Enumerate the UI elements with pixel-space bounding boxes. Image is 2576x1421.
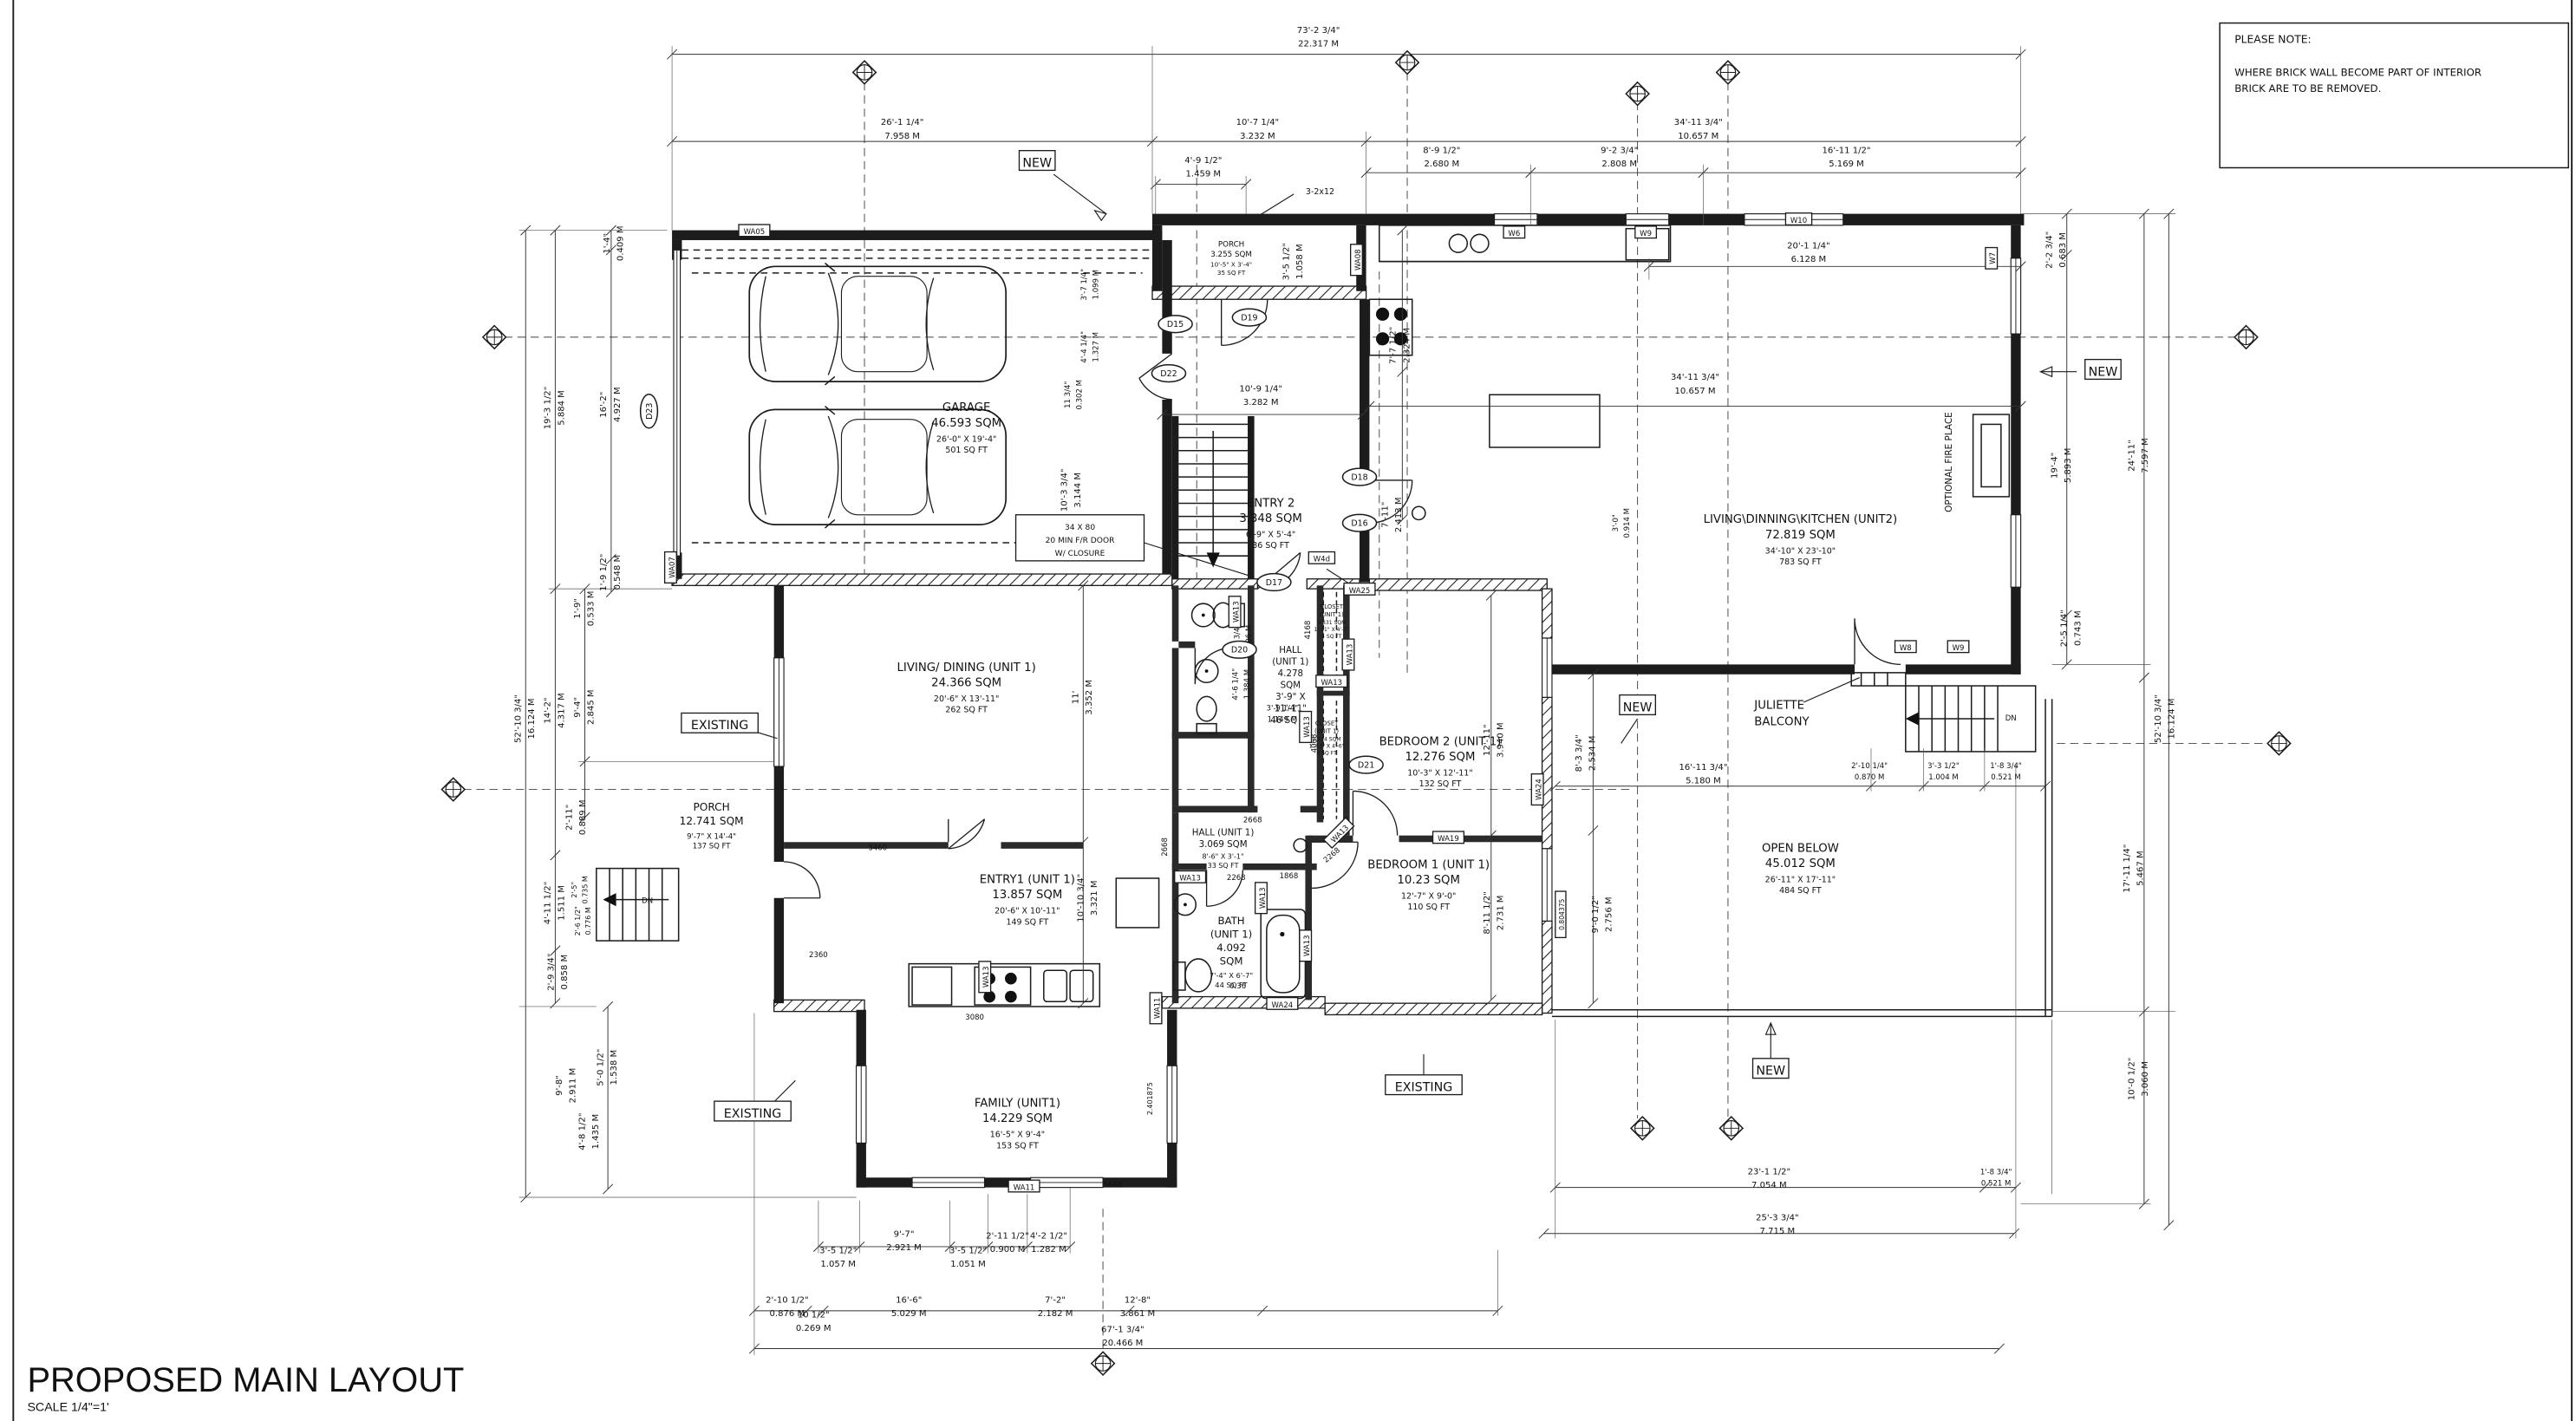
dimension-label: 52'-10 3/4" (514, 694, 524, 743)
dimension-label: 11' (1072, 691, 1081, 705)
wall-tag: 0.804375 (1555, 891, 1566, 937)
tag-text: WA07 (668, 557, 677, 578)
room-label: 4.278 (1278, 668, 1303, 679)
tag-text: D16 (1351, 519, 1367, 529)
interior-partitions (784, 585, 1542, 1003)
tag-text: W6 (1508, 230, 1520, 238)
wall-tag: WA05 (739, 225, 770, 237)
sheet-title: PROPOSED MAIN LAYOUT (27, 1361, 464, 1399)
dimension-label: 19'-4" (2050, 453, 2059, 479)
door-tag: D21 (1349, 756, 1383, 773)
dimension-label: 4'-8 1/2" (578, 1113, 588, 1150)
dimension-label: 16'-2" (599, 392, 609, 418)
dimension-label: 0.870 M (1855, 773, 1884, 782)
room-label: LIVING/ DINING (UNIT 1) (897, 662, 1036, 675)
note-heading: PLEASE NOTE: (2234, 33, 2311, 45)
wall-tag: WA25 (1344, 583, 1375, 596)
dimension-label: 10'-0 1/2" (2128, 1058, 2137, 1101)
wall-tag: W6 (1503, 226, 1525, 238)
dimension-label: 19'-3 1/2" (544, 387, 553, 430)
wall-tag: WA24 (1267, 998, 1298, 1010)
door-tag: D22 (1151, 365, 1185, 382)
note-block: PLEASE NOTE: WHERE BRICK WALL BECOME PAR… (2234, 33, 2481, 95)
grid-marker-icon (2234, 326, 2258, 349)
dimension-label: 0.533 M (586, 591, 596, 627)
dimension-label: 3'-5 1/2" (1281, 243, 1291, 280)
room-label: 12.741 SQM (680, 815, 744, 827)
tag-text: NEW (1623, 701, 1653, 714)
floor-plan-canvas: GARAGE46.593 SQM26'-0" X 19'-4"501 SQ FT… (0, 0, 2576, 1421)
dimension-label: 12'-11" (1483, 724, 1492, 756)
dimension-label: 2.731 M (1496, 896, 1505, 931)
dimension-label: 7'-11" (1380, 502, 1390, 528)
room-label: PORCH (1218, 241, 1244, 250)
dimension-label: 0.269 M (796, 1324, 831, 1333)
room-label: 36 SQ FT (1252, 541, 1289, 551)
dimension-label: 9'-7" (894, 1230, 915, 1240)
dimension-label: 9'-8" (555, 1075, 564, 1096)
dimension-label: 2.911 M (569, 1068, 578, 1104)
dimension-label: 3'-0" (1612, 514, 1621, 531)
room-label: CLOSET (1315, 720, 1339, 727)
wall-tag: WA08 (1351, 244, 1363, 276)
tag-text: W4d (1314, 556, 1330, 564)
annotation-text: BALCONY (1754, 716, 1810, 729)
room-label: 35 SQ FT (1217, 269, 1246, 277)
grid-marker-icon (1717, 61, 1740, 84)
tag-text: WA24 (1536, 779, 1544, 800)
dimension-label: 4.927 M (613, 387, 623, 422)
dimension-label: 1'-8 3/4" (1990, 762, 2022, 771)
tag-text: W8 (1900, 644, 1912, 653)
dimension-label: 2.182 M (1038, 1309, 1073, 1319)
dimension-label: 3.232 M (1240, 132, 1275, 141)
room-label: 26'-11" X 17'-11" (1765, 876, 1836, 885)
room-label: 3'-9" X (1275, 692, 1306, 702)
room-label: 4.092 (1216, 942, 1246, 954)
dimension-label: 11 3/4" (1064, 381, 1073, 408)
annotation-text: DN (642, 896, 653, 905)
annotation-text: 2268 (1227, 874, 1246, 883)
annotation-text: 4168 (1304, 621, 1313, 640)
wall-tag: W7 (1986, 248, 1998, 270)
dimension-label: 0.889 M (578, 799, 588, 835)
room-label: SQM (1281, 681, 1301, 691)
room-label: HALL (UNIT 1) (1192, 828, 1255, 838)
dimension-label: 3'-5 1/2" (819, 1247, 857, 1256)
tag-text: D21 (1358, 761, 1374, 771)
annotation-text: DN (2005, 714, 2017, 723)
kitchen-unit2 (1369, 225, 1670, 447)
dimension-label: 1.435 M (591, 1114, 601, 1150)
dimension-label: 67'-1 3/4" (1101, 1326, 1145, 1335)
grid-marker-icon (2267, 732, 2291, 755)
dimension-label: 0.858 M (560, 955, 570, 990)
room-label: 24.366 SQM (931, 677, 1001, 690)
dimension-label: 10 1/2" (798, 1310, 830, 1320)
room-label: 7'-4" X 6'-7" (1210, 971, 1254, 980)
tag-text: D15 (1167, 320, 1184, 329)
tag-text: W9 (1953, 644, 1965, 653)
dimension-label: 7'-2" (1045, 1295, 1066, 1305)
note-text: 34 X 80 (1065, 524, 1095, 532)
wall-tag: WA13 (1324, 818, 1354, 848)
dimension-label: 3.861 M (1120, 1309, 1156, 1319)
room-label: 20'-6" X 13'-11" (934, 694, 999, 704)
room-label: 3.255 SQM (1210, 251, 1252, 259)
room-label: 132 SQ FT (1419, 779, 1462, 789)
dimension-label: 5.169 M (1829, 160, 1864, 169)
dimension-label: 4'-6 1/4" (1232, 668, 1241, 701)
room-label: 3.348 SQM (1239, 512, 1302, 525)
dimension-label: 2.324 M (1402, 328, 1412, 363)
dimension-label: 5'-0 1/2" (596, 1049, 605, 1086)
status-tag: EXISTING (1386, 1075, 1462, 1095)
room-label: ENTRY1 (UNIT 1) (980, 874, 1075, 887)
dimension-label: 52'-10 3/4" (2154, 694, 2163, 743)
tag-text: D23 (645, 403, 655, 420)
dimension-label: 1.384 M (1243, 669, 1252, 699)
room-label: ENTRY 2 (1247, 497, 1295, 510)
dimension-label: 1.057 M (820, 1260, 856, 1269)
room-label: 262 SQ FT (945, 706, 988, 715)
dimension-label: 1'-9 1/2" (599, 554, 609, 591)
tag-text: D17 (1266, 578, 1282, 588)
room-label: 72.819 SQM (1765, 529, 1836, 542)
dimension-label: 12'-8" (1125, 1295, 1151, 1305)
dimension-label: 34'-11 3/4" (1671, 373, 1719, 382)
dimension-label: 2'-11 1/2" (986, 1231, 1029, 1241)
dimension-label: 10'-10 3/4" (1076, 874, 1086, 922)
tag-text: WA13 (982, 967, 991, 988)
dimension-label: 20.466 M (1102, 1339, 1143, 1348)
tag-text: WA11 (1153, 998, 1162, 1020)
dimension-label: 26'-1 1/4" (881, 118, 924, 127)
dimension-label: 10.657 M (1674, 387, 1715, 396)
dimension-label: 2.808 M (1601, 160, 1637, 169)
room-label: 110 SQ FT (1407, 903, 1450, 912)
annotation-text: 3-2x12 (1306, 187, 1334, 197)
dimension-label: 2'-10 1/4" (1851, 762, 1888, 771)
fire-door-note: 34 X 8020 MIN F/R DOORW/ CLOSURE (1016, 515, 1145, 561)
wall-tag: WA13 (1175, 871, 1206, 883)
fireplace (1973, 414, 2010, 497)
dimension-label: 4'-11 1/2" (544, 882, 553, 925)
dimension-label: 14'-2" (544, 697, 553, 723)
tag-text: WA13 (1232, 601, 1241, 623)
dimension-label: 3'-3 1/2" (1927, 762, 1960, 771)
room-label: 10.23 SQM (1397, 874, 1460, 887)
dimension-label: 9'-0 1/2" (1591, 896, 1601, 933)
annotation-text: 4068 (1311, 734, 1320, 753)
room-label: 10'-5" X 3'-4" (1210, 261, 1252, 269)
drawing-sheet: GARAGE46.593 SQM26'-0" X 19'-4"501 SQ FT… (0, 0, 2576, 1421)
room-label: 16'-5" X 9'-4" (990, 1131, 1045, 1140)
room-label: 13.857 SQM (992, 889, 1062, 902)
wall-tag: W8 (1895, 641, 1917, 653)
wall-tag: W9 (1947, 641, 1969, 653)
note-text: 20 MIN F/R DOOR (1046, 537, 1116, 545)
room-label: (UNIT 1) (1210, 929, 1252, 941)
annotation-text: 2360 (809, 951, 828, 960)
note-line2: BRICK ARE TO BE REMOVED. (2234, 82, 2381, 95)
dimension-label: 4'-4 1/4" (1080, 331, 1089, 363)
dimension-label: 16'-6" (896, 1295, 922, 1305)
tag-text: W7 (1989, 252, 1998, 264)
grid-marker-icon (441, 778, 465, 801)
note-text: W/ CLOSURE (1055, 550, 1105, 558)
status-tag: NEW (1753, 1059, 1789, 1079)
tag-text: WA13 (1321, 679, 1342, 688)
room-label: 20'-6" X 10'-11" (995, 907, 1060, 916)
dimension-label: 1.058 M (1295, 244, 1305, 279)
dimension-label: 2.534 M (1588, 736, 1598, 772)
status-tag: EXISTING (681, 713, 758, 733)
stairs-juliette (1851, 673, 2035, 752)
tag-text: W9 (1640, 230, 1652, 238)
grid-marker-icon (853, 61, 877, 84)
wall-tag: WA24 (1531, 774, 1543, 805)
dimension-label: 0.521 M (1981, 1180, 2011, 1189)
stairs-porch (597, 869, 679, 941)
dimension-label: 3.940 M (1496, 722, 1505, 758)
room-label: BATH (1217, 915, 1244, 927)
dimension-label: 10'-9 1/4" (1239, 384, 1282, 394)
annotation-text: 1868 (1280, 872, 1299, 881)
tag-text: D22 (1160, 369, 1177, 379)
dimension-label: 34'-11 3/4" (1674, 118, 1723, 127)
dimension-label: 22.317 M (1298, 40, 1339, 49)
dimension-label: 1.459 M (1185, 169, 1221, 179)
wall-tag: WA13 (1342, 639, 1354, 670)
room-label: 9'-7" X 14'-4" (687, 832, 736, 841)
status-tag: EXISTING (714, 1101, 791, 1121)
tag-text: EXISTING (1395, 1080, 1452, 1094)
dimension-label: 16'-11 1/2" (1823, 146, 1871, 155)
door-tag: D18 (1342, 468, 1376, 486)
room-label: 12.276 SQM (1405, 751, 1475, 764)
door-tag: D20 (1223, 641, 1256, 658)
bath-fixtures-mid (1195, 660, 1218, 733)
room-label: 137 SQ FT (693, 843, 732, 851)
annotation-text: 5668 (1104, 1182, 1123, 1190)
dimension-label: 8'-11 1/2" (1483, 891, 1492, 935)
dimension-label: 1.051 M (950, 1260, 986, 1269)
dimension-label: 3.321 M (1090, 880, 1099, 916)
dimension-label: 8'-9 1/2" (1423, 146, 1460, 155)
dimension-label: 4'-9 1/2" (1184, 156, 1222, 166)
dimension-label: 7.597 M (2141, 438, 2150, 473)
wall-tag: WA13 (979, 961, 991, 993)
room-label: 153 SQ FT (996, 1141, 1039, 1150)
dimension-label: 2.413 M (1394, 497, 1404, 532)
room-label: GARAGE (942, 401, 991, 414)
grid-marker-icon (1092, 1352, 1115, 1375)
room-label: (UNIT 1) (1320, 611, 1344, 618)
dimension-label: 5.029 M (891, 1309, 927, 1319)
room-label: 46.593 SQM (931, 417, 1001, 430)
dimension-label: 0.900 M (990, 1245, 1026, 1255)
tag-text: D18 (1351, 473, 1367, 483)
room-label: 26'-0" X 19'-4" (936, 434, 996, 444)
dimension-label: 23'-1 1/2" (1748, 1167, 1791, 1177)
dimension-label: 1'-8 3/4" (1980, 1168, 2012, 1177)
wall-tag: WA13 (1229, 596, 1241, 628)
room-label: 12'-7" X 9'-0" (1401, 892, 1456, 902)
tag-text: WA24 (1272, 1001, 1294, 1010)
dimension-label: 2.921 M (886, 1243, 922, 1253)
room-label: CLOSET (1321, 603, 1344, 610)
tag-text: W10 (1790, 217, 1807, 225)
dimension-label: 8'-3 3/4" (1575, 734, 1584, 772)
dimension-label: 0.548 M (613, 555, 623, 590)
tag-text: NEW (1756, 1064, 1785, 1078)
dimension-label: 1.511 M (557, 885, 566, 921)
grid-marker-icon (1719, 1117, 1743, 1140)
dimension-label: 0.776 M (584, 907, 592, 935)
status-tag: NEW (2085, 360, 2121, 380)
dimension-label: 7.054 M (1751, 1181, 1787, 1190)
room-label: 1'-11" X 4'-7" (1314, 627, 1349, 633)
sheet-scale: SCALE 1/4"=1' (27, 1401, 108, 1415)
tag-text: WA11 (1014, 1183, 1035, 1192)
status-tag: NEW (1019, 151, 1054, 171)
dimension-label: 9'-4" (573, 697, 583, 718)
room-label: 45.012 SQM (1765, 857, 1836, 870)
dimension-label: 24'-11" (2128, 440, 2137, 472)
room-label: 3.069 SQM (1199, 839, 1248, 850)
dimension-label: 1.538 M (610, 1050, 619, 1085)
tag-text: WA13 (1179, 875, 1201, 883)
room-label: 33 SQ FT (1208, 862, 1239, 870)
room-label: HALL (1279, 645, 1301, 655)
dimension-label: 2'-5 1/4" (2060, 609, 2070, 647)
wall-tag: WA19 (1433, 831, 1464, 844)
dimension-label: 10'-7 1/4" (1236, 118, 1280, 127)
dimension-label: 2'-9 3/4" (546, 954, 556, 991)
tag-text: WA13 (1303, 935, 1312, 956)
wall-tag: WA13 (1255, 883, 1268, 914)
dimension-label: 5.180 M (1686, 776, 1721, 785)
room-label: 14.229 SQM (982, 1112, 1053, 1125)
door-tag: D17 (1257, 574, 1291, 591)
dimension-label: 0.683 M (2058, 232, 2068, 268)
dimension-label: 3.060 M (2141, 1061, 2150, 1097)
annotation-text: 2668 (1243, 816, 1262, 825)
dimension-label: 3'-9 1/4" (1267, 705, 1299, 714)
wall-tag: WA13 (1316, 675, 1347, 688)
dimension-label: 16.124 M (527, 698, 537, 739)
grid-marker-icon (1626, 82, 1649, 106)
dimension-label: 1.282 M (1031, 1245, 1066, 1255)
annotation-text: 2268 (1322, 846, 1342, 865)
annotation-text: 2.401875 (1146, 1082, 1154, 1115)
wall-tag: WA13 (1300, 930, 1312, 961)
annotation-text: 0.36 (1229, 982, 1246, 991)
tag-text: D20 (1231, 646, 1248, 655)
title-block: PROPOSED MAIN LAYOUT SCALE 1/4"=1' (27, 1361, 464, 1415)
room-label: 501 SQ FT (945, 446, 988, 455)
dimension-label: 1.004 M (1928, 773, 1958, 782)
tag-text: WA25 (1349, 587, 1371, 596)
dimension-label: 73'-2 3/4" (1297, 26, 1340, 36)
note-line1: WHERE BRICK WALL BECOME PART OF INTERIOR (2234, 66, 2481, 78)
dimension-label: 7'-7 1/2" (1389, 327, 1399, 364)
grid-marker-icon (1631, 1117, 1654, 1140)
dimension-label: 2'-5" (571, 882, 578, 898)
room-label: 149 SQ FT (1007, 917, 1049, 927)
dimension-label: 9'-2 3/4" (1601, 146, 1638, 155)
dimension-label: 6.128 M (1791, 255, 1827, 264)
room-label: 10'-3" X 12'-11" (1407, 768, 1472, 778)
dimension-label: 4'-2 1/2" (1030, 1231, 1067, 1241)
dimension-label: 10.657 M (1678, 132, 1718, 141)
wall-tag: W10 (1785, 213, 1811, 225)
dimension-label: 20'-1 1/4" (1787, 241, 1830, 251)
tag-text: NEW (2089, 365, 2118, 379)
tag-text: WA08 (1354, 249, 1363, 271)
annotation-text: 3460 (868, 844, 887, 853)
dimension-label: 2'-11" (564, 805, 574, 831)
dimension-label: 5.893 M (2064, 448, 2073, 484)
wall-tag: W4d (1308, 552, 1334, 564)
tag-text: WA13 (1259, 887, 1268, 909)
wall-tag: W9 (1635, 226, 1657, 238)
dimension-label: 2.680 M (1425, 160, 1460, 169)
annotation-text: OPTIONAL FIRE PLACE (1944, 412, 1954, 512)
dimension-label: 4.317 M (557, 693, 566, 728)
door-tag: D23 (641, 394, 658, 428)
dimension-label: 7.958 M (884, 132, 920, 141)
door-tag: D16 (1342, 514, 1376, 531)
stairs-main (1178, 424, 1248, 567)
room-label: 783 SQ FT (1779, 557, 1822, 567)
annotation-text: JULIETTE (1753, 700, 1804, 713)
tag-text: WA05 (744, 228, 766, 237)
dimension-label: 1.099 M (1092, 270, 1100, 299)
dimension-label: 1'-9" (573, 598, 583, 619)
room-label: LIVING\DINNING\KITCHEN (UNIT2) (1704, 513, 1898, 526)
dimension-label: 2'-10 1/2" (766, 1295, 809, 1305)
room-label: OPEN BELOW (1762, 843, 1839, 856)
room-label: 8'-6" X 3'-1" (1202, 853, 1243, 861)
dimension-label: 2.845 M (586, 689, 596, 725)
dimension-label: 1'-4" (603, 233, 612, 254)
dimension-label: 0.735 M (581, 876, 589, 903)
room-label: SQM (1220, 955, 1243, 968)
tag-text: WA19 (1438, 835, 1459, 844)
room-label: (UNIT 1) (1272, 657, 1308, 668)
tag-text: 0.804375 (1558, 898, 1566, 929)
door-tag: D19 (1232, 309, 1266, 326)
dimension-label: 25'-3 3/4" (1756, 1214, 1799, 1223)
dimension-label: 0.302 M (1075, 380, 1084, 409)
dimension-label: 1.149 M (1268, 716, 1297, 725)
room-label: 0.831 SQM (1317, 620, 1346, 626)
leader-arrows (756, 174, 2077, 1102)
tag-text: WA13 (1346, 644, 1354, 666)
dimension-label: 3'-5 1/2" (949, 1247, 987, 1256)
dimension-label: 0.914 M (1623, 508, 1632, 538)
room-label: BEDROOM 1 (UNIT 1) (1367, 859, 1490, 872)
tag-text: EXISTING (691, 719, 748, 733)
room-label: FAMILY (UNIT1) (975, 1098, 1060, 1111)
room-label: 34'-10" X 23'-10" (1765, 546, 1836, 556)
grid-marker-icon (483, 326, 506, 349)
dimension-label: 3.352 M (1085, 680, 1094, 715)
dimension-label: 3'-7 1/4" (1080, 269, 1089, 301)
tag-text: NEW (1022, 156, 1052, 170)
